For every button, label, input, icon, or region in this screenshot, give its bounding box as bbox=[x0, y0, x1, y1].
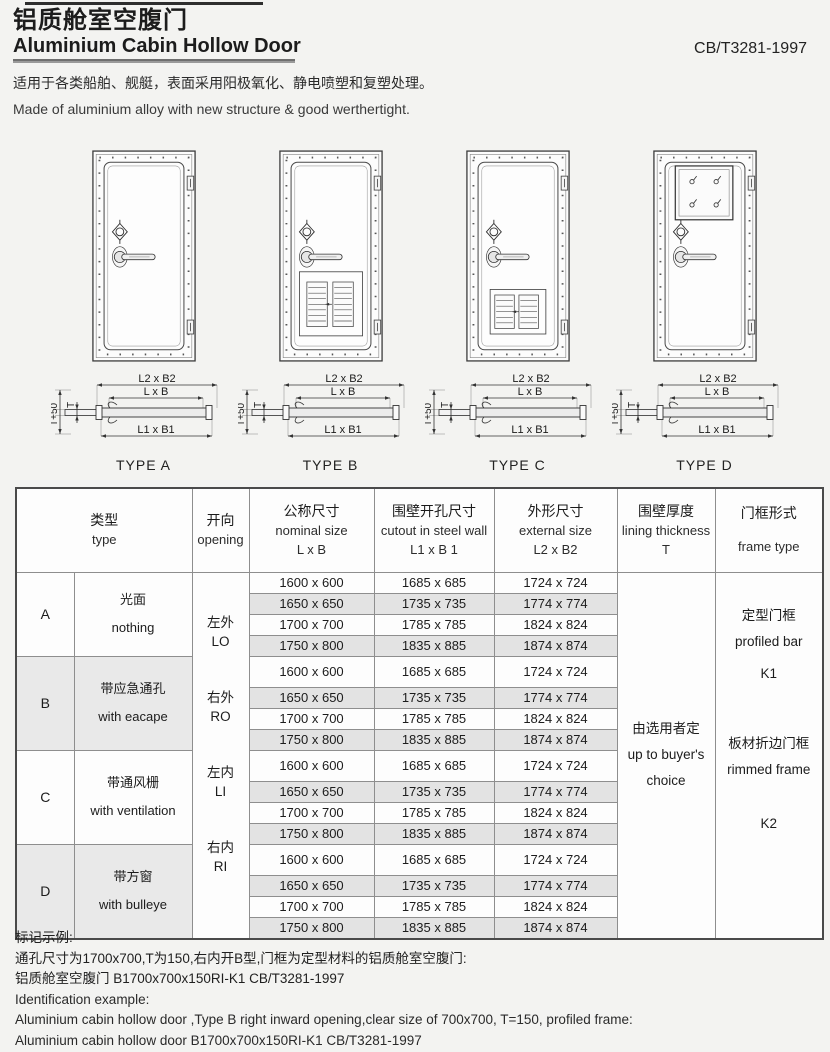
example-line-cn-1: 通孔尺寸为1700x700,T为150,右内开B型,门框为定型材料的铝质舱室空腹… bbox=[15, 949, 815, 970]
wall-lining-section bbox=[626, 410, 660, 416]
type-desc-cell: 带通风栅 with ventilation bbox=[74, 750, 192, 844]
col-header-frame-type: 门框形式 frame type bbox=[715, 488, 823, 572]
cutout-size-cell: 1735 x 735 bbox=[374, 875, 494, 896]
type-letter-cell: D bbox=[16, 844, 74, 939]
external-size-cell: 1874 x 874 bbox=[494, 635, 617, 656]
dim-label-external: L2 x B2 bbox=[325, 373, 362, 385]
door-figure-type-a: L2 x B2 L x B L1 x B1 T+50 T TYPE A bbox=[50, 142, 237, 473]
nominal-size-cell: 1600 x 600 bbox=[249, 572, 374, 593]
dim-label-thickness: T bbox=[440, 402, 451, 408]
dim-label-thickness-plus: T+50 bbox=[612, 402, 621, 426]
page-header: 铝质舱室空腹门 Aluminium Cabin Hollow Door CB/T… bbox=[13, 8, 817, 117]
cutout-size-cell: 1785 x 785 bbox=[374, 708, 494, 729]
opening-option: 左内 LI bbox=[193, 763, 249, 801]
external-size-cell: 1824 x 824 bbox=[494, 708, 617, 729]
title-underline bbox=[13, 59, 295, 63]
dim-label-nominal: L x B bbox=[517, 386, 542, 398]
dim-label-cutout: L1 x B1 bbox=[137, 424, 174, 436]
dim-label-cutout: L1 x B1 bbox=[698, 424, 735, 436]
nominal-size-cell: 1650 x 650 bbox=[249, 687, 374, 708]
cutout-size-cell: 1835 x 885 bbox=[374, 635, 494, 656]
nominal-size-cell: 1700 x 700 bbox=[249, 802, 374, 823]
example-label-cn: 标记示例: bbox=[15, 928, 815, 949]
dim-label-nominal: L x B bbox=[704, 386, 729, 398]
wall-lining-section bbox=[65, 410, 99, 416]
example-line-en-2: Aluminium cabin hollow door B1700x700x15… bbox=[15, 1031, 815, 1052]
door-cross-section: L2 x B2 L x B L1 x B1 T+50 T bbox=[238, 372, 424, 456]
external-size-cell: 1724 x 724 bbox=[494, 844, 617, 875]
nominal-size-cell: 1650 x 650 bbox=[249, 593, 374, 614]
nominal-size-cell: 1700 x 700 bbox=[249, 614, 374, 635]
type-desc-cell: 带方窗 with bulleye bbox=[74, 844, 192, 939]
nominal-size-cell: 1600 x 600 bbox=[249, 844, 374, 875]
opening-option: 左外 LO bbox=[193, 613, 249, 651]
external-size-cell: 1774 x 774 bbox=[494, 875, 617, 896]
cutout-size-cell: 1785 x 785 bbox=[374, 802, 494, 823]
nominal-size-cell: 1600 x 600 bbox=[249, 750, 374, 781]
table-row: A 光面 nothing 左外 LO 右外 RO 左内 LI 右内 RI1600… bbox=[16, 572, 823, 593]
external-size-cell: 1724 x 724 bbox=[494, 572, 617, 593]
dim-label-cutout: L1 x B1 bbox=[511, 424, 548, 436]
door-front-view bbox=[279, 142, 383, 370]
opening-option: 右外 RO bbox=[193, 688, 249, 726]
cutout-size-cell: 1685 x 685 bbox=[374, 844, 494, 875]
door-leaf-section bbox=[101, 408, 207, 417]
specification-table: 类型 type 开向 opening 公称尺寸 nominal size L x… bbox=[15, 487, 824, 940]
cutout-size-cell: 1735 x 735 bbox=[374, 593, 494, 614]
nominal-size-cell: 1750 x 800 bbox=[249, 729, 374, 750]
dim-label-cutout: L1 x B1 bbox=[324, 424, 361, 436]
dim-label-nominal: L x B bbox=[143, 386, 168, 398]
col-header-opening: 开向 opening bbox=[192, 488, 249, 572]
cutout-size-cell: 1835 x 885 bbox=[374, 729, 494, 750]
specification-table-wrap: 类型 type 开向 opening 公称尺寸 nominal size L x… bbox=[15, 487, 824, 940]
page-title-chinese: 铝质舱室空腹门 bbox=[13, 8, 817, 34]
square-window bbox=[675, 166, 733, 220]
cutout-size-cell: 1835 x 885 bbox=[374, 823, 494, 844]
external-size-cell: 1774 x 774 bbox=[494, 593, 617, 614]
wall-lining-section bbox=[439, 410, 473, 416]
door-cross-section: L2 x B2 L x B L1 x B1 T+50 T bbox=[51, 372, 237, 456]
type-desc-cell: 光面 nothing bbox=[74, 572, 192, 656]
col-header-external-size: 外形尺寸 external size L2 x B2 bbox=[494, 488, 617, 572]
type-letter-cell: C bbox=[16, 750, 74, 844]
cutout-size-cell: 1685 x 685 bbox=[374, 750, 494, 781]
cutout-size-cell: 1735 x 735 bbox=[374, 781, 494, 802]
door-cross-section: L2 x B2 L x B L1 x B1 T+50 T bbox=[425, 372, 611, 456]
nominal-size-cell: 1650 x 650 bbox=[249, 875, 374, 896]
external-size-cell: 1874 x 874 bbox=[494, 823, 617, 844]
dim-label-thickness-plus: T+50 bbox=[238, 402, 247, 426]
cutout-size-cell: 1785 x 785 bbox=[374, 896, 494, 917]
dim-label-thickness-plus: T+50 bbox=[51, 402, 60, 426]
example-line-en-1: Aluminium cabin hollow door ,Type B righ… bbox=[15, 1010, 815, 1031]
door-figure-type-c: L2 x B2 L x B L1 x B1 T+50 T TYPE C bbox=[424, 142, 611, 473]
nominal-size-cell: 1700 x 700 bbox=[249, 896, 374, 917]
standard-code: CB/T3281-1997 bbox=[694, 40, 807, 58]
dim-label-external: L2 x B2 bbox=[138, 373, 175, 385]
type-letter-cell: A bbox=[16, 572, 74, 656]
opening-option: 右内 RI bbox=[193, 838, 249, 876]
dim-label-thickness: T bbox=[253, 402, 264, 408]
door-type-label: TYPE B bbox=[303, 457, 359, 473]
dim-label-external: L2 x B2 bbox=[512, 373, 549, 385]
nominal-size-cell: 1600 x 600 bbox=[249, 656, 374, 687]
col-header-cutout-size: 围壁开孔尺寸 cutout in steel wall L1 x B 1 bbox=[374, 488, 494, 572]
dim-label-nominal: L x B bbox=[330, 386, 355, 398]
cutout-size-cell: 1685 x 685 bbox=[374, 572, 494, 593]
external-size-cell: 1874 x 874 bbox=[494, 729, 617, 750]
wall-lining-section bbox=[252, 410, 286, 416]
external-size-cell: 1724 x 724 bbox=[494, 750, 617, 781]
external-size-cell: 1824 x 824 bbox=[494, 802, 617, 823]
door-type-label: TYPE C bbox=[489, 457, 546, 473]
external-size-cell: 1774 x 774 bbox=[494, 687, 617, 708]
opening-cell: 左外 LO 右外 RO 左内 LI 右内 RI bbox=[192, 572, 249, 939]
door-type-label: TYPE D bbox=[676, 457, 733, 473]
identification-example: 标记示例: 通孔尺寸为1700x700,T为150,右内开B型,门框为定型材料的… bbox=[15, 928, 815, 1051]
door-figure-type-d: L2 x B2 L x B L1 x B1 T+50 T TYPE D bbox=[611, 142, 798, 473]
external-size-cell: 1824 x 824 bbox=[494, 896, 617, 917]
door-front-view bbox=[92, 142, 196, 370]
specification-table-body: A 光面 nothing 左外 LO 右外 RO 左内 LI 右内 RI1600… bbox=[16, 572, 823, 939]
door-type-label: TYPE A bbox=[116, 457, 171, 473]
col-header-lining-thickness: 围壁厚度 lining thickness T bbox=[617, 488, 715, 572]
lining-thickness-cell: 由选用者定 up to buyer's choice bbox=[617, 572, 715, 939]
scan-artifact-line bbox=[25, 2, 263, 5]
door-cross-section: L2 x B2 L x B L1 x B1 T+50 T bbox=[612, 372, 798, 456]
cutout-size-cell: 1785 x 785 bbox=[374, 614, 494, 635]
cutout-size-cell: 1735 x 735 bbox=[374, 687, 494, 708]
dim-label-thickness: T bbox=[627, 402, 638, 408]
col-header-type: 类型 type bbox=[16, 488, 192, 572]
frame-type-cell: 定型门框 profiled bar K1 板材折边门框 rimmed frame… bbox=[715, 572, 823, 939]
example-line-cn-2: 铝质舱室空腹门 B1700x700x150RI-K1 CB/T3281-1997 bbox=[15, 969, 815, 990]
door-front-view bbox=[466, 142, 570, 370]
external-size-cell: 1774 x 774 bbox=[494, 781, 617, 802]
nominal-size-cell: 1650 x 650 bbox=[249, 781, 374, 802]
nominal-size-cell: 1750 x 800 bbox=[249, 823, 374, 844]
dim-label-external: L2 x B2 bbox=[699, 373, 736, 385]
external-size-cell: 1724 x 724 bbox=[494, 656, 617, 687]
door-figure-type-b: L2 x B2 L x B L1 x B1 T+50 T TYPE B bbox=[237, 142, 424, 473]
external-size-cell: 1824 x 824 bbox=[494, 614, 617, 635]
example-label-en: Identification example: bbox=[15, 990, 815, 1011]
door-leaf-section bbox=[288, 408, 394, 417]
description-english: Made of aluminium alloy with new structu… bbox=[13, 101, 817, 117]
nominal-size-cell: 1750 x 800 bbox=[249, 635, 374, 656]
description-chinese: 适用于各类船舶、舰艇，表面采用阳极氧化、静电喷塑和复塑处理。 bbox=[13, 73, 817, 93]
dim-label-thickness-plus: T+50 bbox=[425, 402, 434, 426]
door-leaf-section bbox=[475, 408, 581, 417]
door-diagrams-row: L2 x B2 L x B L1 x B1 T+50 T TYPE A bbox=[50, 142, 798, 473]
dim-label-thickness: T bbox=[66, 402, 77, 408]
door-leaf-section bbox=[662, 408, 768, 417]
cutout-size-cell: 1685 x 685 bbox=[374, 656, 494, 687]
type-letter-cell: B bbox=[16, 656, 74, 750]
col-header-nominal-size: 公称尺寸 nominal size L x B bbox=[249, 488, 374, 572]
door-front-view bbox=[653, 142, 757, 370]
type-desc-cell: 带应急通孔 with eacape bbox=[74, 656, 192, 750]
nominal-size-cell: 1700 x 700 bbox=[249, 708, 374, 729]
